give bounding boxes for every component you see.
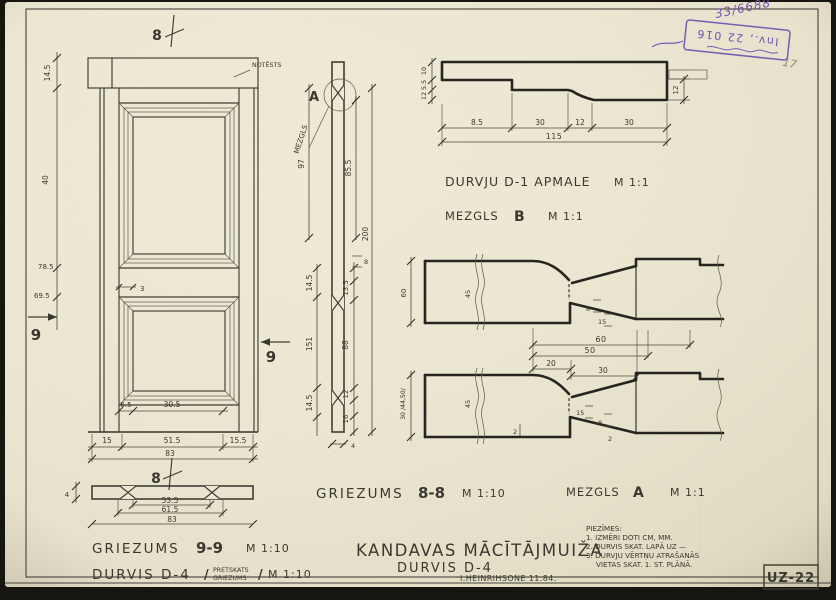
svg-text:8: 8 — [152, 28, 162, 44]
dim-total-83: 83 — [167, 515, 177, 524]
dim-15: 15 — [102, 436, 112, 445]
dim-apm-85: 8.5 — [471, 118, 483, 127]
dim-apm-12l: 12 — [420, 92, 428, 100]
dim-s8: 8 — [364, 258, 368, 266]
durvis-scale: M 1:10 — [268, 568, 312, 581]
dim-97: 97 — [297, 159, 306, 169]
dim-mza-t8: 8 — [586, 305, 590, 313]
dim-mza-b8: 8 — [598, 419, 602, 427]
dim-mza-20: 20 — [546, 359, 556, 368]
dim-785: 78.5 — [38, 263, 54, 271]
apmale-title: DURVJU D-1 APMALE — [445, 174, 591, 189]
dim-135: 13.5 — [342, 280, 350, 296]
drawing-sheet: NOTĒSTS 14.5 40 78.5 69.5 8 8 9 9 — [0, 0, 836, 600]
dim-mza-b2l: 2 — [513, 428, 517, 436]
griezums-88-scale: M 1:10 — [462, 487, 506, 500]
svg-text:9: 9 — [266, 348, 276, 366]
durvis-sub-pretskats: PRETSKATS — [213, 567, 249, 574]
notes-line-1: 1. IZMĒRI DOTI CM, MM. — [586, 533, 673, 542]
svg-text:9: 9 — [31, 326, 41, 344]
dim-mza-50: 50 — [585, 346, 596, 355]
notes-heading: PIEZĪMES: — [586, 524, 622, 533]
author-date: I.HEINRIHSONE 11.84. — [460, 574, 557, 583]
dim-83: 83 — [165, 449, 175, 458]
dim-155: 15.5 — [230, 436, 247, 445]
dim-apm-12: 12 — [575, 118, 585, 127]
dim-145a: 14.5 — [305, 274, 314, 291]
dim-855: 85.5 — [344, 159, 353, 176]
dim-515: 51.5 — [164, 436, 181, 445]
griezums-99-scale: M 1:10 — [246, 542, 290, 555]
dim-695: 69.5 — [34, 292, 50, 300]
griezums-99-no: 9-9 — [196, 539, 223, 557]
sheet-code: UZ-22 — [767, 571, 815, 586]
dim-apm-30a: 30 — [535, 118, 545, 127]
dim-b4: 4 — [351, 442, 355, 450]
dim-apm-55: 5.5 — [420, 80, 428, 90]
durvis-slash-2: / — [258, 568, 263, 583]
dim-88: 88 — [341, 340, 350, 350]
mezgls-b-letter: B — [514, 209, 525, 225]
mezgls-b-scale: M 1:1 — [548, 210, 584, 223]
svg-text:8: 8 — [151, 471, 161, 487]
dim-apm-30b: 30 — [624, 118, 634, 127]
dim-apm-115: 115 — [546, 132, 562, 141]
durvis-slash-1: / — [204, 568, 209, 583]
mezgls-a-title: MEZGLS — [566, 485, 620, 499]
griezums-99-label: GRIEZUMS — [92, 541, 180, 557]
notes-line-2: 2. DURVIS SKAT. LAPĀ UZ — — [586, 542, 686, 551]
dim-mza-b15: 15 — [576, 409, 584, 417]
dim-65: 6.5 — [120, 401, 131, 409]
dim-615: 61.5 — [162, 505, 179, 514]
dim-305: 30.5 — [164, 400, 181, 409]
durvis-sub-griezums: GRIEZUMS — [213, 575, 246, 582]
dim-apm-12r: 12 — [672, 86, 680, 95]
dim-535: 53.5 — [162, 496, 179, 505]
dim-200: 200 — [361, 227, 370, 242]
durvis-label: DURVIS D-4 — [92, 567, 191, 583]
dim-lintel: 14.5 — [43, 64, 52, 81]
griezums-88-label: GRIEZUMS — [316, 486, 404, 502]
dim-mza-3044: 30 /44,50/ — [400, 387, 407, 420]
mezgls-b-title: MEZGLS — [445, 209, 499, 223]
dim-brk-45-top: 45 — [464, 290, 472, 298]
dim-thk-4: 4 — [65, 491, 70, 499]
notes-line-4: VIETAS SKAT. 1. ST. PLĀNĀ. — [596, 560, 692, 569]
dim-16: 16 — [342, 414, 350, 423]
dim-apm-10: 10 — [420, 67, 428, 75]
dim-145b: 14.5 — [305, 394, 314, 411]
dim-upper: 40 — [41, 175, 50, 185]
callout-a: A — [309, 90, 319, 105]
notests-note: NOTĒSTS — [252, 60, 281, 69]
dim-mza-v60: 60 — [400, 289, 408, 298]
mezgls-a-letter: A — [633, 485, 644, 501]
dim-12: 12 — [342, 390, 350, 399]
dim-mza-30: 30 — [598, 366, 608, 375]
dim-mza-b2: 2 — [608, 435, 612, 443]
dim-brk-45-bottom: 45 — [464, 400, 472, 408]
dim-151: 151 — [305, 337, 314, 352]
dim-rail-3: 3 — [140, 285, 144, 293]
apmale-scale: M 1:1 — [614, 176, 650, 189]
project-title: KANDAVAS MĀCĪTĀJMUIŽA — [356, 541, 603, 560]
dim-mza-t15: 15 — [598, 318, 606, 326]
griezums-88-no: 8-8 — [418, 484, 445, 502]
mezgls-a-scale: M 1:1 — [670, 486, 706, 499]
dim-mza-60: 60 — [596, 335, 607, 344]
